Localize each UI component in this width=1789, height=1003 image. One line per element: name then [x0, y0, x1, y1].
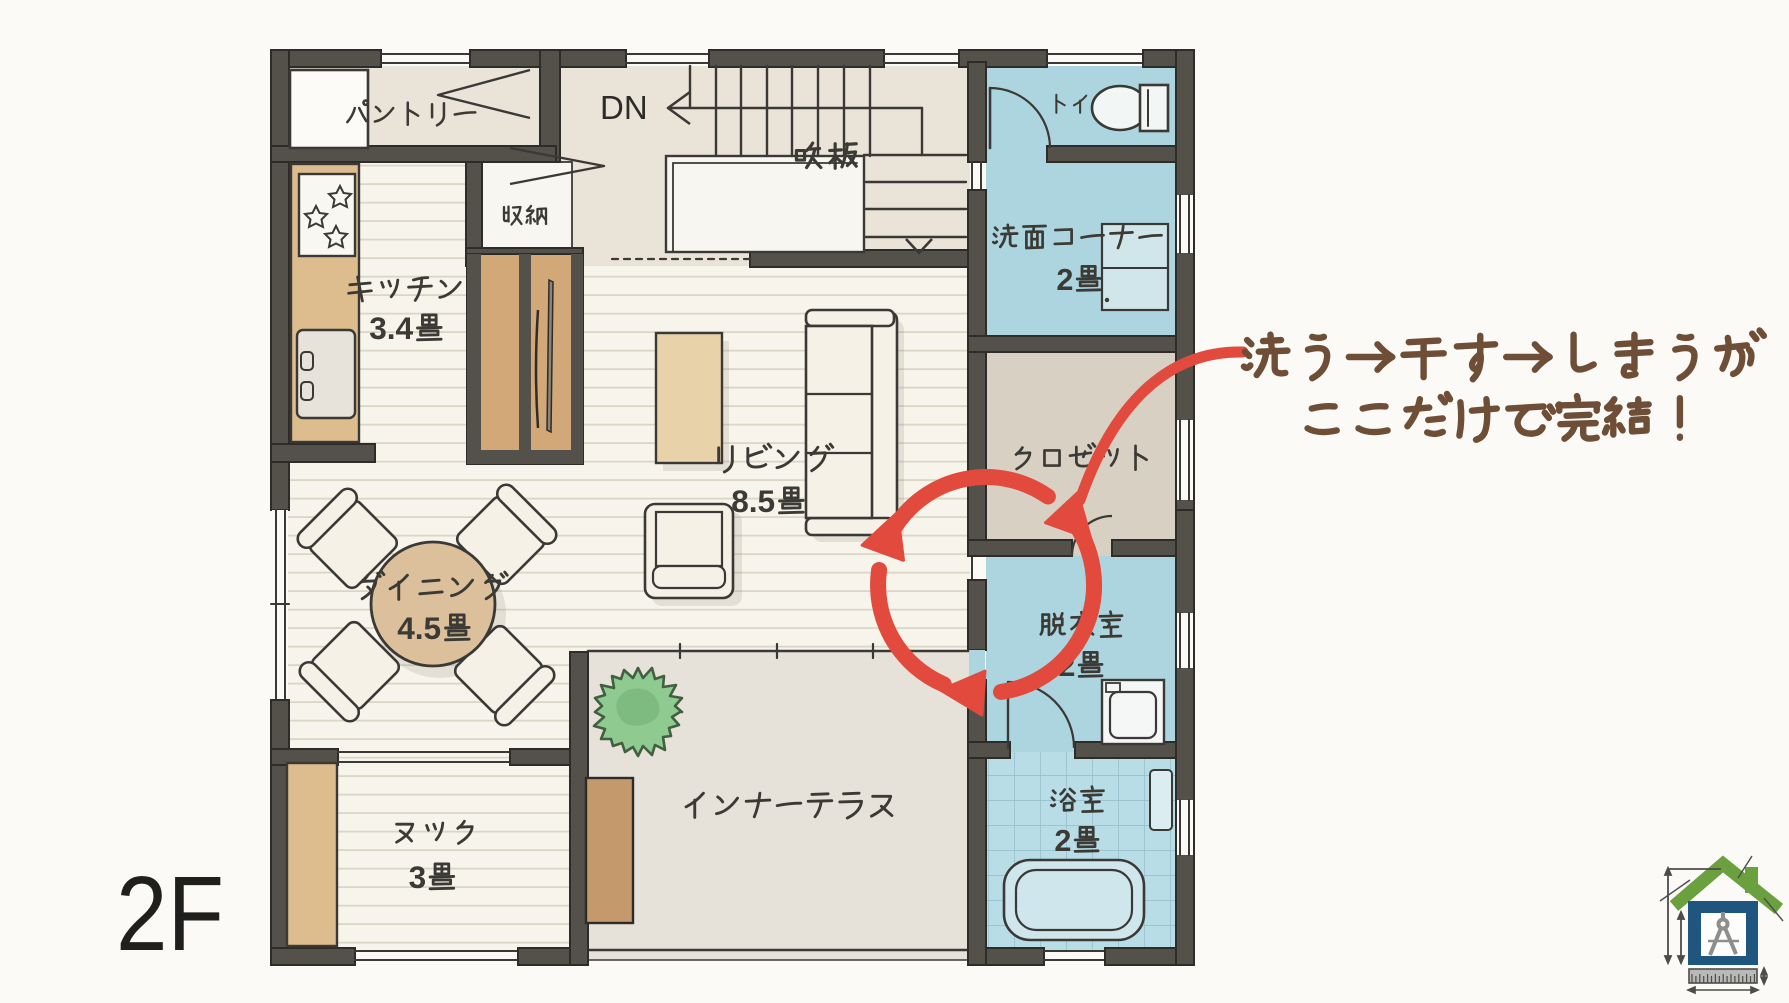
svg-text:3: 3 — [409, 859, 427, 895]
svg-text:DN: DN — [600, 89, 648, 126]
svg-text:2: 2 — [1056, 263, 1073, 297]
svg-text:2F: 2F — [116, 855, 224, 973]
svg-text:4.5: 4.5 — [397, 610, 441, 646]
svg-text:2: 2 — [1054, 824, 1071, 858]
svg-text:8.5: 8.5 — [731, 483, 775, 519]
svg-text:3.4: 3.4 — [369, 310, 413, 346]
